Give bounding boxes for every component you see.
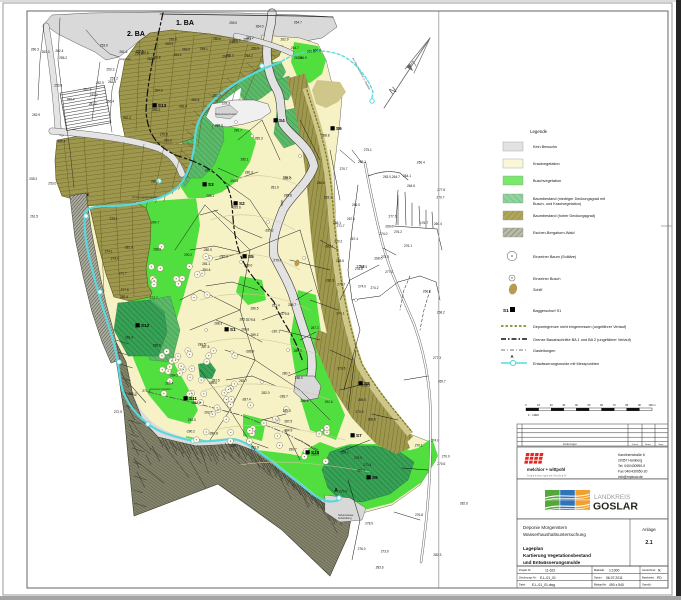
svg-text:282.3: 282.3 (433, 553, 441, 557)
svg-text:-285.6: -285.6 (232, 206, 241, 210)
svg-text:287.5: 287.5 (284, 419, 292, 423)
svg-text:268.8: 268.8 (368, 418, 376, 422)
svg-text:262.9: 262.9 (281, 38, 289, 42)
svg-text:255.2: 255.2 (29, 177, 37, 181)
svg-text:-279.8: -279.8 (246, 318, 255, 322)
svg-text:288.3: 288.3 (214, 322, 222, 326)
svg-text:264.6: 264.6 (407, 184, 415, 188)
svg-text:E: E (87, 192, 90, 197)
svg-text:251.2: 251.2 (89, 102, 97, 106)
svg-text:292.6: 292.6 (325, 400, 333, 404)
svg-text:263.0,264.7: 263.0,264.7 (383, 175, 400, 179)
svg-text:268.6: 268.6 (336, 259, 344, 263)
svg-text:257.1: 257.1 (90, 93, 98, 97)
svg-text:Projekt Nr:: Projekt Nr: (519, 568, 532, 572)
svg-text:269.9: 269.9 (251, 46, 259, 50)
svg-text:286.5: 286.5 (251, 307, 259, 311)
svg-text:282.0: 282.0 (213, 93, 221, 97)
svg-text:100 m: 100 m (648, 403, 655, 407)
svg-text:271.7: 271.7 (119, 271, 127, 275)
svg-text:261.5: 261.5 (307, 49, 315, 53)
svg-text:Fax 040/430950-20: Fax 040/430950-20 (618, 470, 648, 474)
svg-text:285.0: 285.0 (311, 453, 319, 457)
svg-text:176.7: 176.7 (420, 221, 428, 225)
svg-text:276.0: 276.0 (358, 547, 366, 551)
svg-text:282.4: 282.4 (120, 295, 128, 299)
svg-text:-287.2: -287.2 (219, 255, 228, 259)
svg-text:283.3: 283.3 (283, 409, 291, 413)
svg-text:266.0: 266.0 (352, 203, 360, 207)
svg-text:281.9: 281.9 (125, 245, 133, 249)
svg-text:Schilf: Schilf (533, 288, 543, 292)
svg-text:288.8: 288.8 (322, 133, 330, 137)
svg-text:281.4: 281.4 (179, 105, 187, 109)
svg-text:Eschen-Bergahorn-Wald: Eschen-Bergahorn-Wald (533, 231, 574, 235)
svg-text:281.1: 281.1 (202, 262, 210, 266)
svg-text:Deponiegrenze nicht eingemesse: Deponiegrenze nicht eingemessen (ungefäh… (533, 325, 627, 329)
svg-text:284.6: 284.6 (202, 268, 210, 272)
svg-text:-280.9: -280.9 (203, 248, 212, 252)
svg-text:277.6: 277.6 (389, 215, 397, 219)
svg-text:256.2: 256.2 (135, 52, 143, 56)
svg-text:251.2: 251.2 (110, 77, 118, 81)
svg-text:276.8: 276.8 (415, 513, 423, 517)
svg-text:270.0: 270.0 (442, 454, 450, 458)
svg-text:-286.9: -286.9 (245, 350, 254, 354)
svg-text:268.2: 268.2 (437, 311, 445, 315)
svg-text:S4: S4 (279, 118, 285, 123)
svg-text:S7: S7 (356, 433, 362, 438)
svg-text:Baumbestand (niedriger Deckung: Baumbestand (niedriger Deckungsgrad mit (533, 197, 606, 201)
svg-text:Blattgröße:: Blattgröße: (594, 583, 607, 587)
svg-text:282.0: 282.0 (164, 139, 172, 143)
svg-text:S1: S1 (503, 308, 509, 313)
svg-text:256.4: 256.4 (106, 99, 114, 103)
svg-text:281.5: 281.5 (188, 418, 196, 422)
svg-text:290.7: 290.7 (289, 448, 297, 452)
svg-text:275.7: 275.7 (337, 283, 345, 287)
svg-text:-282.2: -282.2 (324, 244, 333, 248)
svg-text:289.4: 289.4 (165, 381, 173, 385)
svg-text:274.8: 274.8 (431, 439, 439, 443)
svg-text:280.1: 280.1 (151, 180, 159, 184)
svg-text:285.0: 285.0 (294, 349, 302, 353)
svg-text:Baggerschurf S1: Baggerschurf S1 (533, 309, 561, 313)
svg-text:289.0: 289.0 (209, 381, 217, 385)
svg-text:288.8: 288.8 (153, 248, 161, 252)
svg-text:273.4: 273.4 (363, 463, 371, 467)
svg-text:Grenze Bauabschnitte BA 1 und: Grenze Bauabschnitte BA 1 und BA 2 (unge… (533, 338, 632, 342)
svg-text:274.1: 274.1 (336, 311, 344, 315)
svg-text:Geprüft:: Geprüft: (642, 583, 652, 587)
svg-text:289.0: 289.0 (244, 264, 252, 268)
svg-text:283.6: 283.6 (376, 565, 384, 569)
svg-text:265.1: 265.1 (358, 160, 366, 164)
svg-text:-280.8: -280.8 (209, 432, 218, 436)
svg-text:-284.2: -284.2 (169, 374, 178, 378)
svg-text:280.7: 280.7 (282, 371, 290, 375)
svg-text:279.8: 279.8 (160, 132, 168, 136)
svg-text:A: A (334, 488, 338, 494)
svg-text:Buschvegetation: Buschvegetation (533, 179, 561, 183)
svg-text:263.2: 263.2 (174, 53, 182, 57)
svg-text:286.7: 286.7 (288, 303, 296, 307)
svg-text:Tel. 040/430950-0: Tel. 040/430950-0 (618, 464, 645, 468)
svg-text:270.7: 270.7 (437, 195, 445, 199)
svg-text:282.2: 282.2 (152, 108, 160, 112)
svg-text:2.1: 2.1 (645, 540, 652, 546)
svg-text:S9: S9 (372, 475, 378, 480)
svg-text:280.3: 280.3 (245, 171, 253, 175)
svg-text:264.7: 264.7 (291, 46, 299, 50)
svg-text:1. BA: 1. BA (176, 20, 194, 27)
svg-text:Deponie Morgenstern: Deponie Morgenstern (523, 525, 568, 530)
svg-text:274.1: 274.1 (105, 250, 113, 254)
svg-text:262.3: 262.3 (83, 87, 91, 91)
svg-text:490 x 540: 490 x 540 (609, 583, 624, 587)
svg-text:289.0: 289.0 (215, 124, 223, 128)
svg-text:266.9: 266.9 (299, 56, 307, 60)
svg-text:280.6: 280.6 (191, 98, 199, 102)
svg-text:274.0: 274.0 (379, 232, 387, 236)
svg-text:272.5: 272.5 (114, 410, 122, 414)
svg-text:286.0: 286.0 (205, 169, 213, 173)
svg-text:268.1: 268.1 (333, 221, 341, 225)
svg-text:253.9: 253.9 (100, 44, 108, 48)
svg-text:285.3: 285.3 (255, 137, 263, 141)
svg-text:277.3: 277.3 (433, 356, 441, 360)
svg-text:253.0: 253.0 (48, 181, 56, 185)
svg-text:260.6: 260.6 (213, 37, 221, 41)
svg-text:264.1: 264.1 (403, 174, 411, 178)
svg-text:-279.5: -279.5 (280, 312, 289, 316)
svg-text:262.9: 262.9 (32, 113, 40, 117)
svg-text:-284.8: -284.8 (192, 401, 201, 405)
svg-text:289.2: 289.2 (251, 333, 259, 337)
svg-text:285.1: 285.1 (241, 157, 249, 161)
svg-text:290.2: 290.2 (184, 253, 192, 257)
svg-text:266.6: 266.6 (423, 290, 431, 294)
svg-text:Weg: Weg (280, 200, 285, 207)
svg-text:281.4: 281.4 (125, 336, 133, 340)
svg-text:Krautvegetation: Krautvegetation (533, 162, 560, 166)
svg-text:283.7: 283.7 (239, 379, 247, 383)
svg-text:(Asphalt): (Asphalt) (119, 57, 131, 61)
svg-text:264.0: 264.0 (256, 24, 264, 28)
svg-text:266.4: 266.4 (434, 222, 442, 226)
svg-text:282.0: 282.0 (262, 391, 270, 395)
svg-text:277.3: 277.3 (121, 288, 129, 292)
svg-text:11-622: 11-622 (545, 568, 555, 572)
svg-text:und Entwässerungsmulde: und Entwässerungsmulde (523, 560, 581, 565)
svg-text:Wasserhaushaltsuntersuchung: Wasserhaushaltsuntersuchung (523, 532, 586, 537)
svg-text:291.4: 291.4 (272, 303, 280, 307)
svg-text:276.1: 276.1 (404, 244, 412, 248)
svg-text:285.8: 285.8 (284, 194, 292, 198)
svg-text:-284.7: -284.7 (150, 221, 159, 225)
svg-text:288.1: 288.1 (206, 194, 214, 198)
svg-text:Zeichnungs Nr:: Zeichnungs Nr: (519, 575, 537, 579)
svg-text:261.6: 261.6 (119, 50, 127, 54)
svg-text:259.0: 259.0 (229, 21, 237, 25)
svg-text:269.0: 269.0 (385, 225, 393, 229)
svg-text:262.4: 262.4 (147, 57, 155, 61)
svg-text:270.1: 270.1 (415, 444, 423, 448)
svg-text:Datum:: Datum: (594, 575, 603, 579)
svg-text:273.9: 273.9 (381, 550, 389, 554)
svg-text:281.9: 281.9 (271, 186, 279, 190)
svg-text:263.0: 263.0 (182, 48, 190, 52)
svg-text:Gezeichnet:: Gezeichnet: (642, 568, 656, 572)
svg-text:E-L-01_01: E-L-01_01 (540, 576, 556, 580)
svg-text:262.3: 262.3 (123, 116, 131, 120)
svg-text:263.3: 263.3 (42, 50, 50, 54)
svg-text:A: A (510, 354, 513, 359)
svg-text:Kondensatabscheider: Kondensatabscheider (132, 195, 157, 199)
svg-text:274.2: 274.2 (371, 286, 379, 290)
svg-text:262.0: 262.0 (169, 38, 177, 42)
svg-text:290.5: 290.5 (230, 179, 238, 183)
svg-text:278.9: 278.9 (365, 521, 373, 525)
svg-text:Anlage: Anlage (642, 527, 656, 532)
svg-text:Lageplan: Lageplan (523, 546, 543, 551)
svg-text:266.4: 266.4 (417, 160, 425, 164)
svg-text:Entwässerungsmulde mit Messpun: Entwässerungsmulde mit Messpunkten (533, 362, 599, 366)
svg-text:Einzelner Baum (Solitäre): Einzelner Baum (Solitäre) (533, 255, 577, 259)
svg-text:Änderungen: Änderungen (563, 442, 578, 446)
svg-text:269.9: 269.9 (165, 42, 173, 46)
svg-text:262.9: 262.9 (96, 81, 104, 85)
svg-text:264.7: 264.7 (294, 21, 302, 25)
svg-text:GOSLAR: GOSLAR (593, 501, 638, 513)
svg-text:Maßstab:: Maßstab: (594, 568, 605, 572)
svg-text:06.07.2011: 06.07.2011 (606, 576, 623, 580)
svg-text:275.1: 275.1 (364, 148, 372, 152)
svg-text:291.9: 291.9 (251, 445, 259, 449)
svg-text:fk: fk (658, 568, 661, 572)
svg-text:283.3: 283.3 (324, 195, 332, 199)
svg-text:287.3: 287.3 (311, 326, 319, 330)
svg-text:279.6: 279.6 (339, 490, 347, 494)
svg-text:PD: PD (657, 576, 662, 580)
svg-text:286.0: 286.0 (295, 376, 303, 380)
svg-text:274.0: 274.0 (111, 257, 119, 261)
svg-text:Sickerwasserbecken: Sickerwasserbecken (215, 113, 238, 116)
svg-text:290.8: 290.8 (241, 328, 249, 332)
svg-text:289.7: 289.7 (234, 129, 242, 133)
svg-text:267.0: 267.0 (347, 217, 355, 221)
svg-text:268.4: 268.4 (243, 37, 251, 41)
svg-text:269.1: 269.1 (341, 451, 349, 455)
svg-text:267.7: 267.7 (357, 469, 365, 473)
svg-text:279.9: 279.9 (283, 175, 291, 179)
svg-text:2. BA: 2. BA (127, 31, 145, 38)
svg-text:Gepr.: Gepr. (658, 443, 664, 446)
svg-text:270.5: 270.5 (337, 366, 345, 370)
svg-text:268.3: 268.3 (359, 265, 367, 269)
svg-text:-279.0: -279.0 (273, 258, 282, 262)
svg-text:276.2: 276.2 (394, 230, 402, 234)
svg-text:Gassammelstation: Gassammelstation (150, 387, 172, 391)
svg-text:-284.9: -284.9 (283, 429, 292, 433)
svg-text:info@mplusw.de: info@mplusw.de (618, 475, 643, 479)
svg-text:275.1: 275.1 (110, 217, 118, 221)
svg-text:Busch- und Krautvegetation): Busch- und Krautvegetation) (533, 202, 582, 206)
svg-text:255.2: 255.2 (59, 56, 67, 60)
svg-text:287.5: 287.5 (201, 345, 209, 349)
svg-text:265.1: 265.1 (230, 40, 238, 44)
svg-text:Karolinenstraße 6: Karolinenstraße 6 (618, 453, 645, 457)
svg-text:Bearbeitet:: Bearbeitet: (642, 575, 655, 579)
svg-text:265.1: 265.1 (200, 47, 208, 51)
svg-text:Einzelner Busch: Einzelner Busch (533, 277, 560, 281)
svg-text:267.4: 267.4 (350, 237, 358, 241)
svg-text:20357 Hamburg: 20357 Hamburg (618, 459, 642, 463)
svg-text:I n g e n i e u r g e s e l l: I n g e n i e u r g e s e l l s c h a f … (527, 474, 566, 478)
svg-text:Kartierung Vegetationsbestand: Kartierung Vegetationsbestand (523, 553, 591, 558)
svg-text:-287.1: -287.1 (271, 329, 280, 333)
svg-text:1 : 1000: 1 : 1000 (528, 413, 539, 417)
svg-text:E-L-01_01.dwg: E-L-01_01.dwg (532, 583, 555, 587)
svg-text:282.6: 282.6 (460, 502, 468, 506)
svg-text:270.2: 270.2 (334, 239, 342, 243)
svg-text:260.4: 260.4 (57, 140, 65, 144)
svg-text:285.6: 285.6 (153, 344, 161, 348)
svg-text:277.0: 277.0 (385, 270, 393, 274)
svg-text:S1: S1 (230, 327, 236, 332)
svg-text:279.3: 279.3 (222, 102, 230, 106)
svg-text:262.4: 262.4 (55, 49, 63, 53)
svg-text:275.0: 275.0 (354, 456, 362, 460)
svg-text:-287.4: -287.4 (242, 397, 251, 401)
svg-text:Kein Bewuchs: Kein Bewuchs (533, 145, 557, 149)
svg-text:285.0: 285.0 (240, 318, 248, 322)
svg-text:1:1000: 1:1000 (609, 568, 619, 572)
svg-text:Legende: Legende (530, 129, 548, 134)
svg-text:S3: S3 (208, 182, 214, 187)
svg-text:272.7: 272.7 (150, 296, 158, 300)
svg-text:292.7: 292.7 (204, 411, 212, 415)
svg-text:275.3: 275.3 (381, 255, 389, 259)
svg-text:270.7: 270.7 (340, 167, 348, 171)
svg-text:Gasleitungen: Gasleitungen (533, 349, 555, 353)
svg-text:269.8: 269.8 (362, 384, 370, 388)
svg-text:S6: S6 (336, 126, 342, 131)
svg-text:289.7: 289.7 (230, 444, 238, 448)
svg-text:264.2: 264.2 (245, 54, 253, 58)
svg-text:S5: S5 (248, 254, 254, 259)
svg-text:269.5: 269.5 (358, 398, 366, 402)
svg-text:-283.7: -283.7 (279, 395, 288, 399)
svg-text:260.4: 260.4 (67, 97, 75, 101)
svg-text:284.9: 284.9 (155, 88, 163, 92)
svg-text:-290.2: -290.2 (186, 429, 195, 433)
svg-text:behandlung: behandlung (338, 516, 352, 520)
svg-text:274.0: 274.0 (358, 285, 366, 289)
svg-text:260.3: 260.3 (31, 47, 39, 51)
svg-text:274.9: 274.9 (355, 410, 363, 414)
svg-text:-281.9: -281.9 (325, 279, 334, 283)
svg-text:Datei:: Datei: (519, 583, 526, 587)
svg-text:280.0: 280.0 (129, 392, 137, 396)
svg-text:280.6: 280.6 (317, 181, 325, 185)
svg-text:melchior + wittpohl: melchior + wittpohl (527, 467, 565, 472)
svg-text:261.5: 261.5 (30, 214, 38, 218)
svg-text:S12: S12 (141, 323, 150, 328)
svg-text:Baumbestand (hoher Deckungsgra: Baumbestand (hoher Deckungsgrad) (533, 214, 596, 218)
svg-text:286.5: 286.5 (300, 399, 308, 403)
svg-text:Datum: Datum (632, 443, 639, 446)
svg-text:253.3: 253.3 (106, 68, 114, 72)
svg-text:Name: Name (645, 444, 652, 446)
svg-text:253.8: 253.8 (54, 84, 62, 88)
svg-text:-283.2: -283.2 (265, 229, 274, 233)
svg-text:265.0: 265.0 (226, 53, 234, 57)
